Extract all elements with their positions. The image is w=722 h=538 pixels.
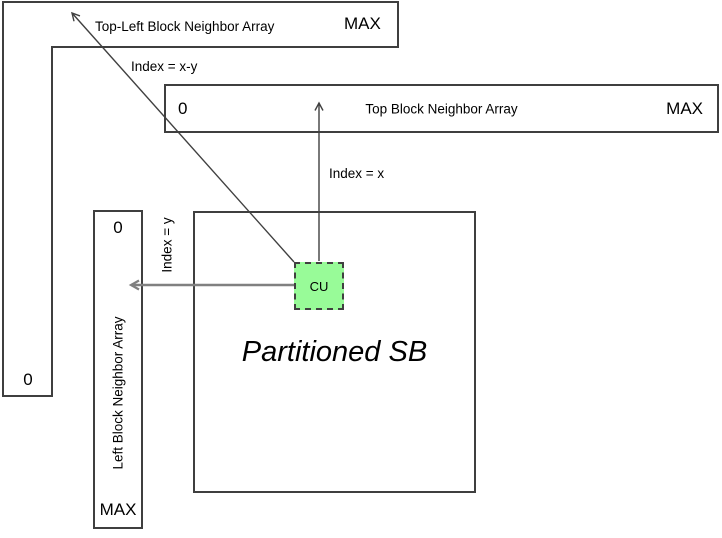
left-array-box: 0 Left Block Neighbor Array MAX — [93, 210, 143, 529]
diagram-canvas: Top-Left Block Neighbor Array MAX 0 0 To… — [0, 0, 722, 538]
cu-block: CU — [294, 262, 344, 310]
index-xy-label: Index = x-y — [131, 59, 197, 74]
top-left-array-max: MAX — [344, 14, 381, 34]
left-array-label: Left Block Neighbor Array — [111, 316, 126, 469]
left-array-max: MAX — [95, 500, 141, 520]
top-array-max: MAX — [666, 99, 703, 119]
top-left-array-label: Top-Left Block Neighbor Array — [95, 19, 274, 34]
top-array-box: 0 Top Block Neighbor Array MAX — [164, 84, 719, 133]
index-y-label: Index = y — [160, 217, 175, 272]
sb-label: Partitioned SB — [242, 336, 427, 369]
top-left-array-zero: 0 — [4, 370, 52, 390]
sb-box: Partitioned SB — [193, 211, 476, 493]
index-x-label: Index = x — [329, 166, 384, 181]
top-array-label: Top Block Neighbor Array — [166, 101, 717, 116]
left-array-zero: 0 — [95, 218, 141, 238]
cu-label: CU — [310, 279, 329, 294]
